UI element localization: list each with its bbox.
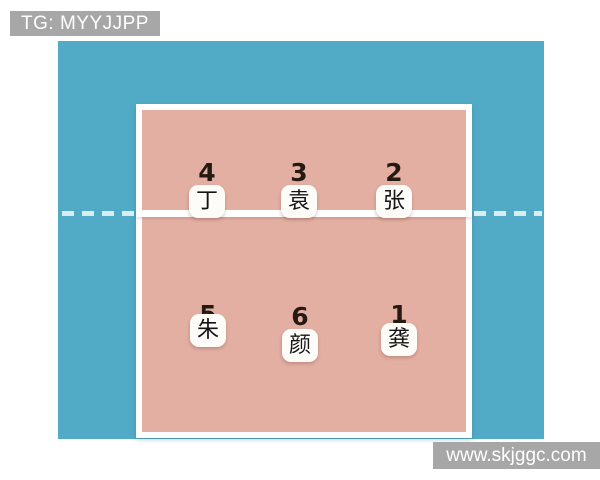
site-watermark: www.skjggc.com (433, 442, 600, 469)
player-position-1: 1 龚 (381, 304, 417, 356)
position-number: 6 (291, 306, 308, 328)
position-number: 4 (198, 162, 215, 184)
player-position-4: 4 丁 (189, 162, 225, 218)
player-name-tag: 张 (376, 185, 412, 218)
net-extension-dashed-line-left (62, 211, 134, 216)
player-position-5: 5 朱 (190, 304, 226, 347)
volleyball-court (136, 104, 472, 438)
position-number: 2 (385, 162, 402, 184)
tg-watermark-label: TG: MYYJJPP (10, 11, 160, 36)
screenshot-canvas: TG: MYYJJPP 4 丁 3 袁 2 张 5 朱 6 颜 1 龚 www.… (0, 0, 600, 480)
player-name-tag: 丁 (189, 185, 225, 218)
player-name-tag: 朱 (190, 314, 226, 347)
player-name-tag: 袁 (281, 185, 317, 218)
player-position-6: 6 颜 (282, 306, 318, 362)
player-position-3: 3 袁 (281, 162, 317, 218)
net-extension-dashed-line-right (474, 211, 542, 216)
position-number: 3 (290, 162, 307, 184)
player-name-tag: 龚 (381, 323, 417, 356)
player-position-2: 2 张 (376, 162, 412, 218)
player-name-tag: 颜 (282, 329, 318, 362)
